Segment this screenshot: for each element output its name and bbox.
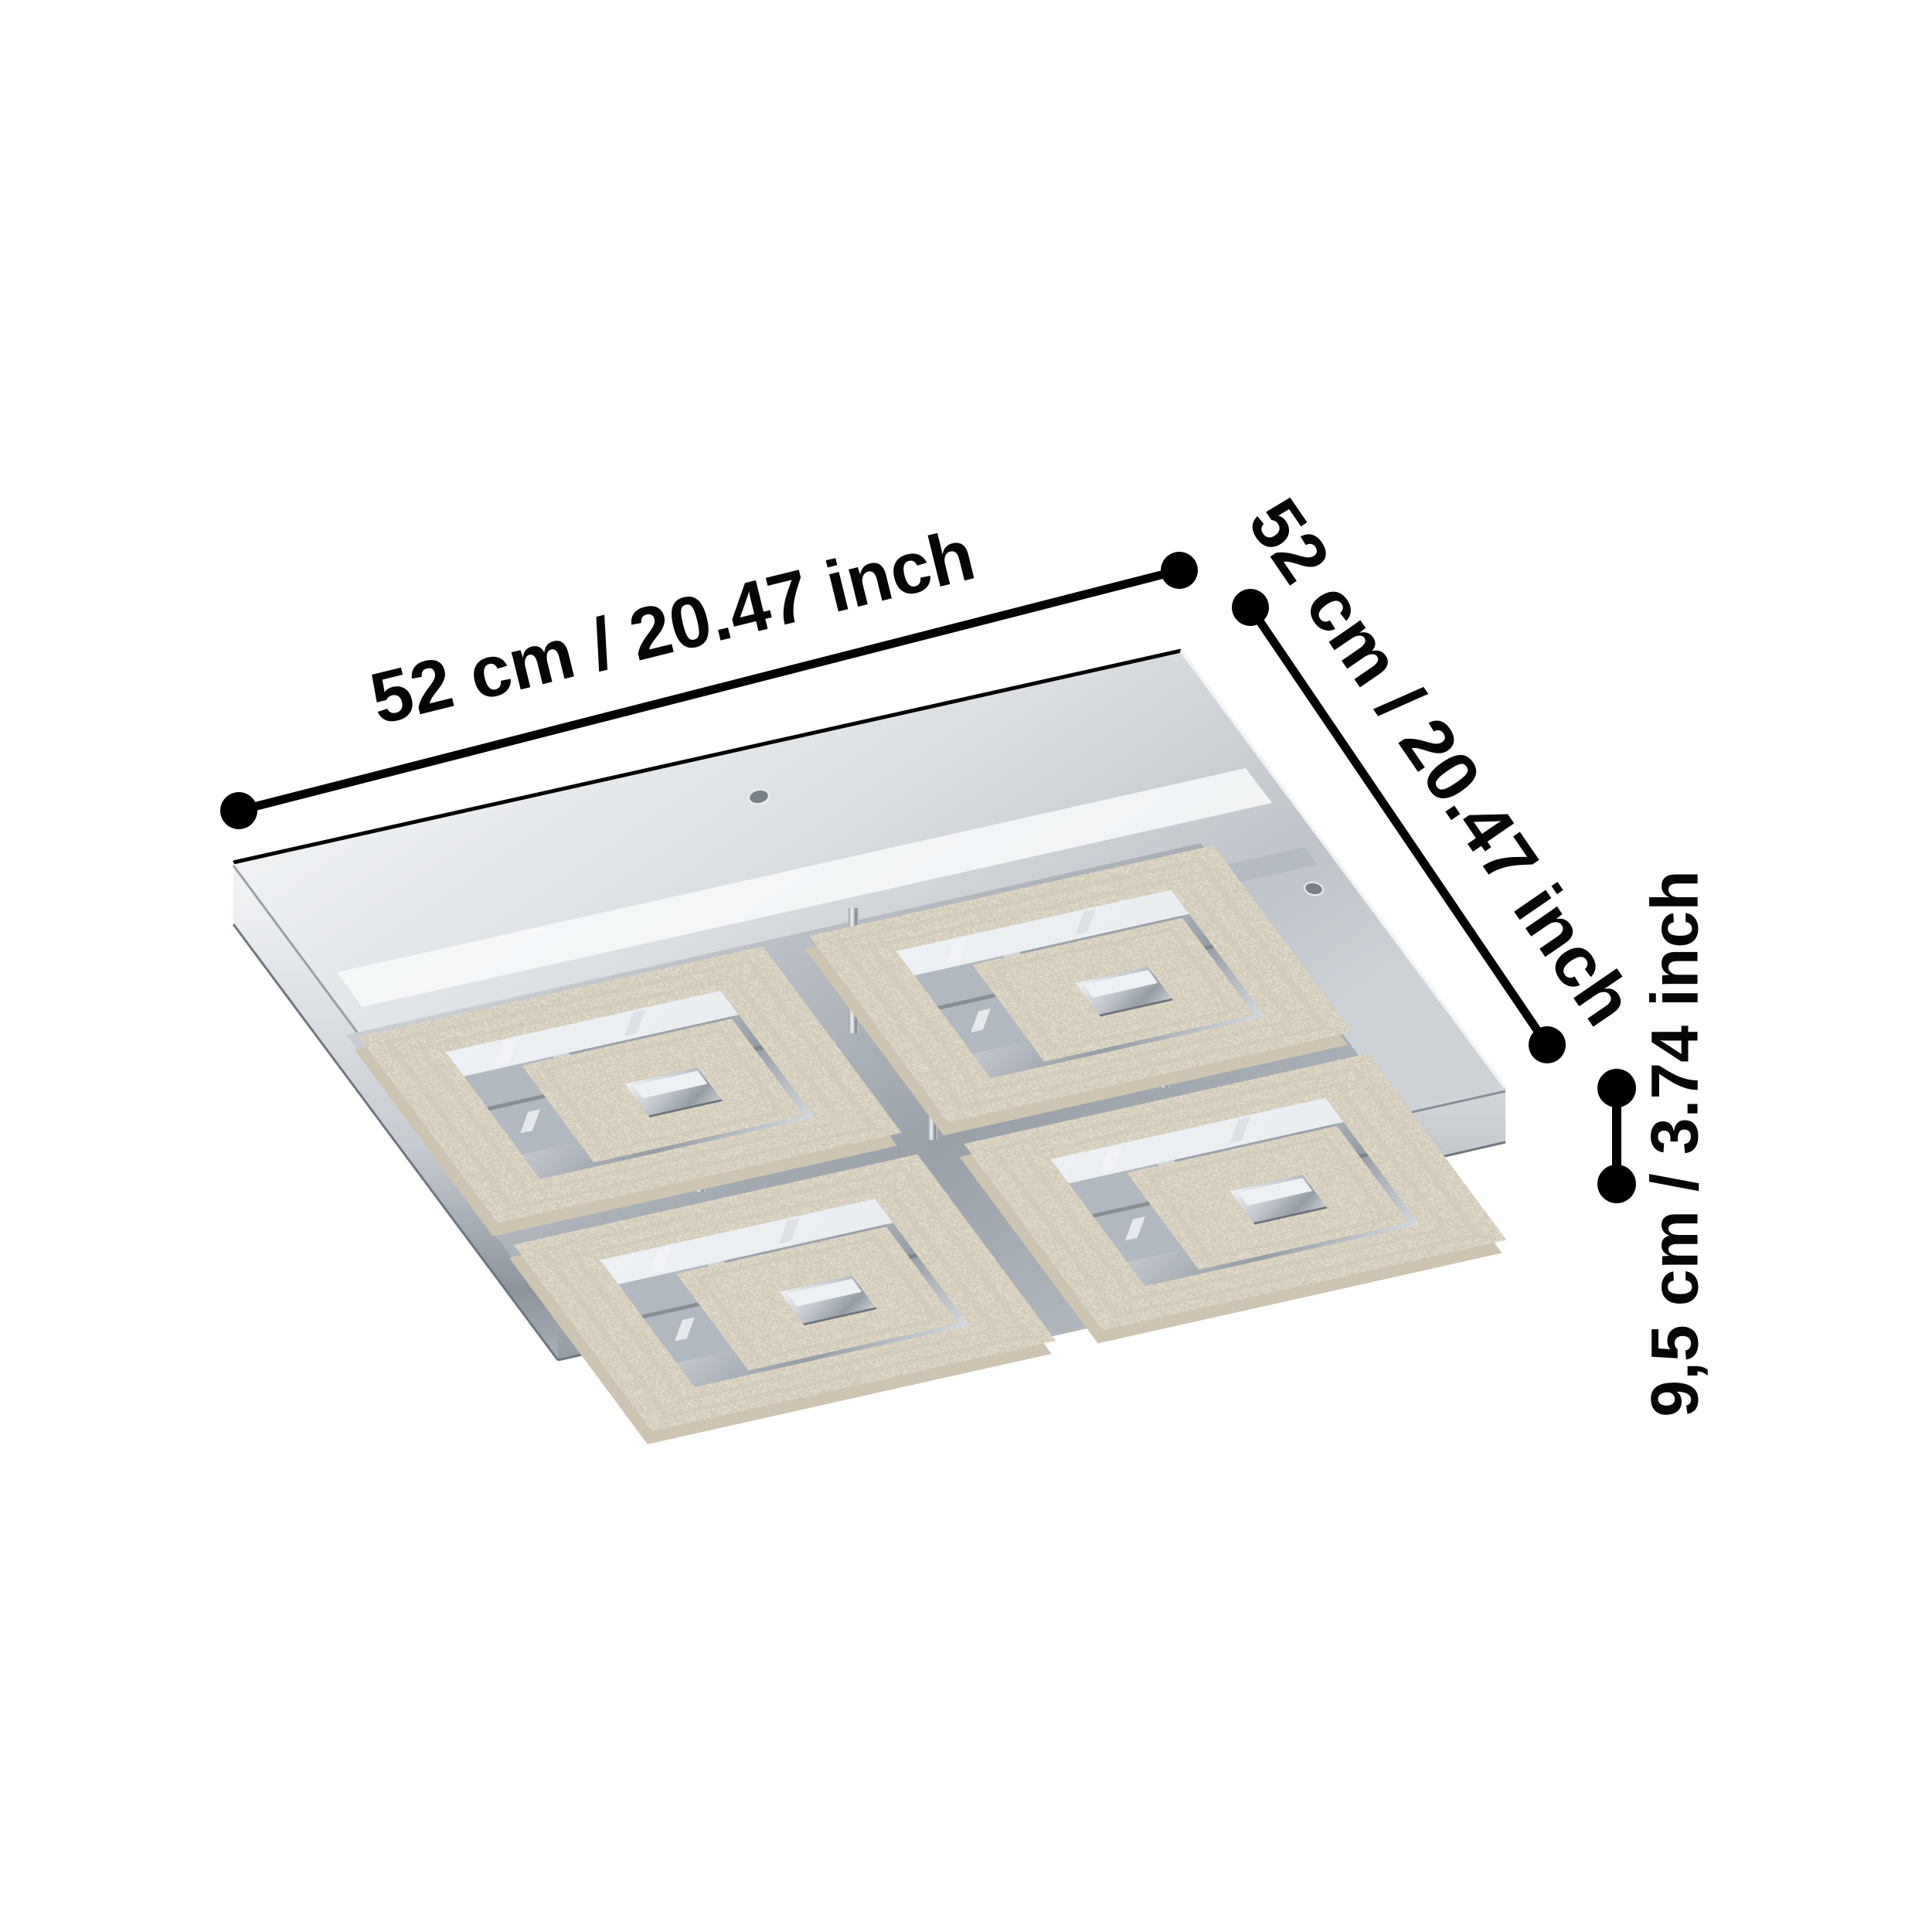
- width-dimension-label: 52 cm / 20.47 inch: [362, 513, 981, 740]
- depth-dimension-endpoint: [1529, 1026, 1566, 1063]
- width-dimension-endpoint: [1161, 552, 1198, 589]
- depth-dimension-endpoint: [1232, 589, 1269, 626]
- product-dimension-diagram: 52 cm / 20.47 inch 52 cm / 20.47 inch 9,…: [0, 0, 1932, 1932]
- diagram-canvas: 52 cm / 20.47 inch 52 cm / 20.47 inch 9,…: [0, 0, 1932, 1932]
- width-dimension-endpoint: [220, 792, 257, 829]
- height-dimension-label: 9,5 cm / 3.74 inch: [1638, 870, 1713, 1417]
- height-dimension-endpoint: [1597, 1069, 1636, 1107]
- ceiling-light-illustration: [233, 651, 1514, 1444]
- height-dimension-endpoint: [1597, 1165, 1636, 1203]
